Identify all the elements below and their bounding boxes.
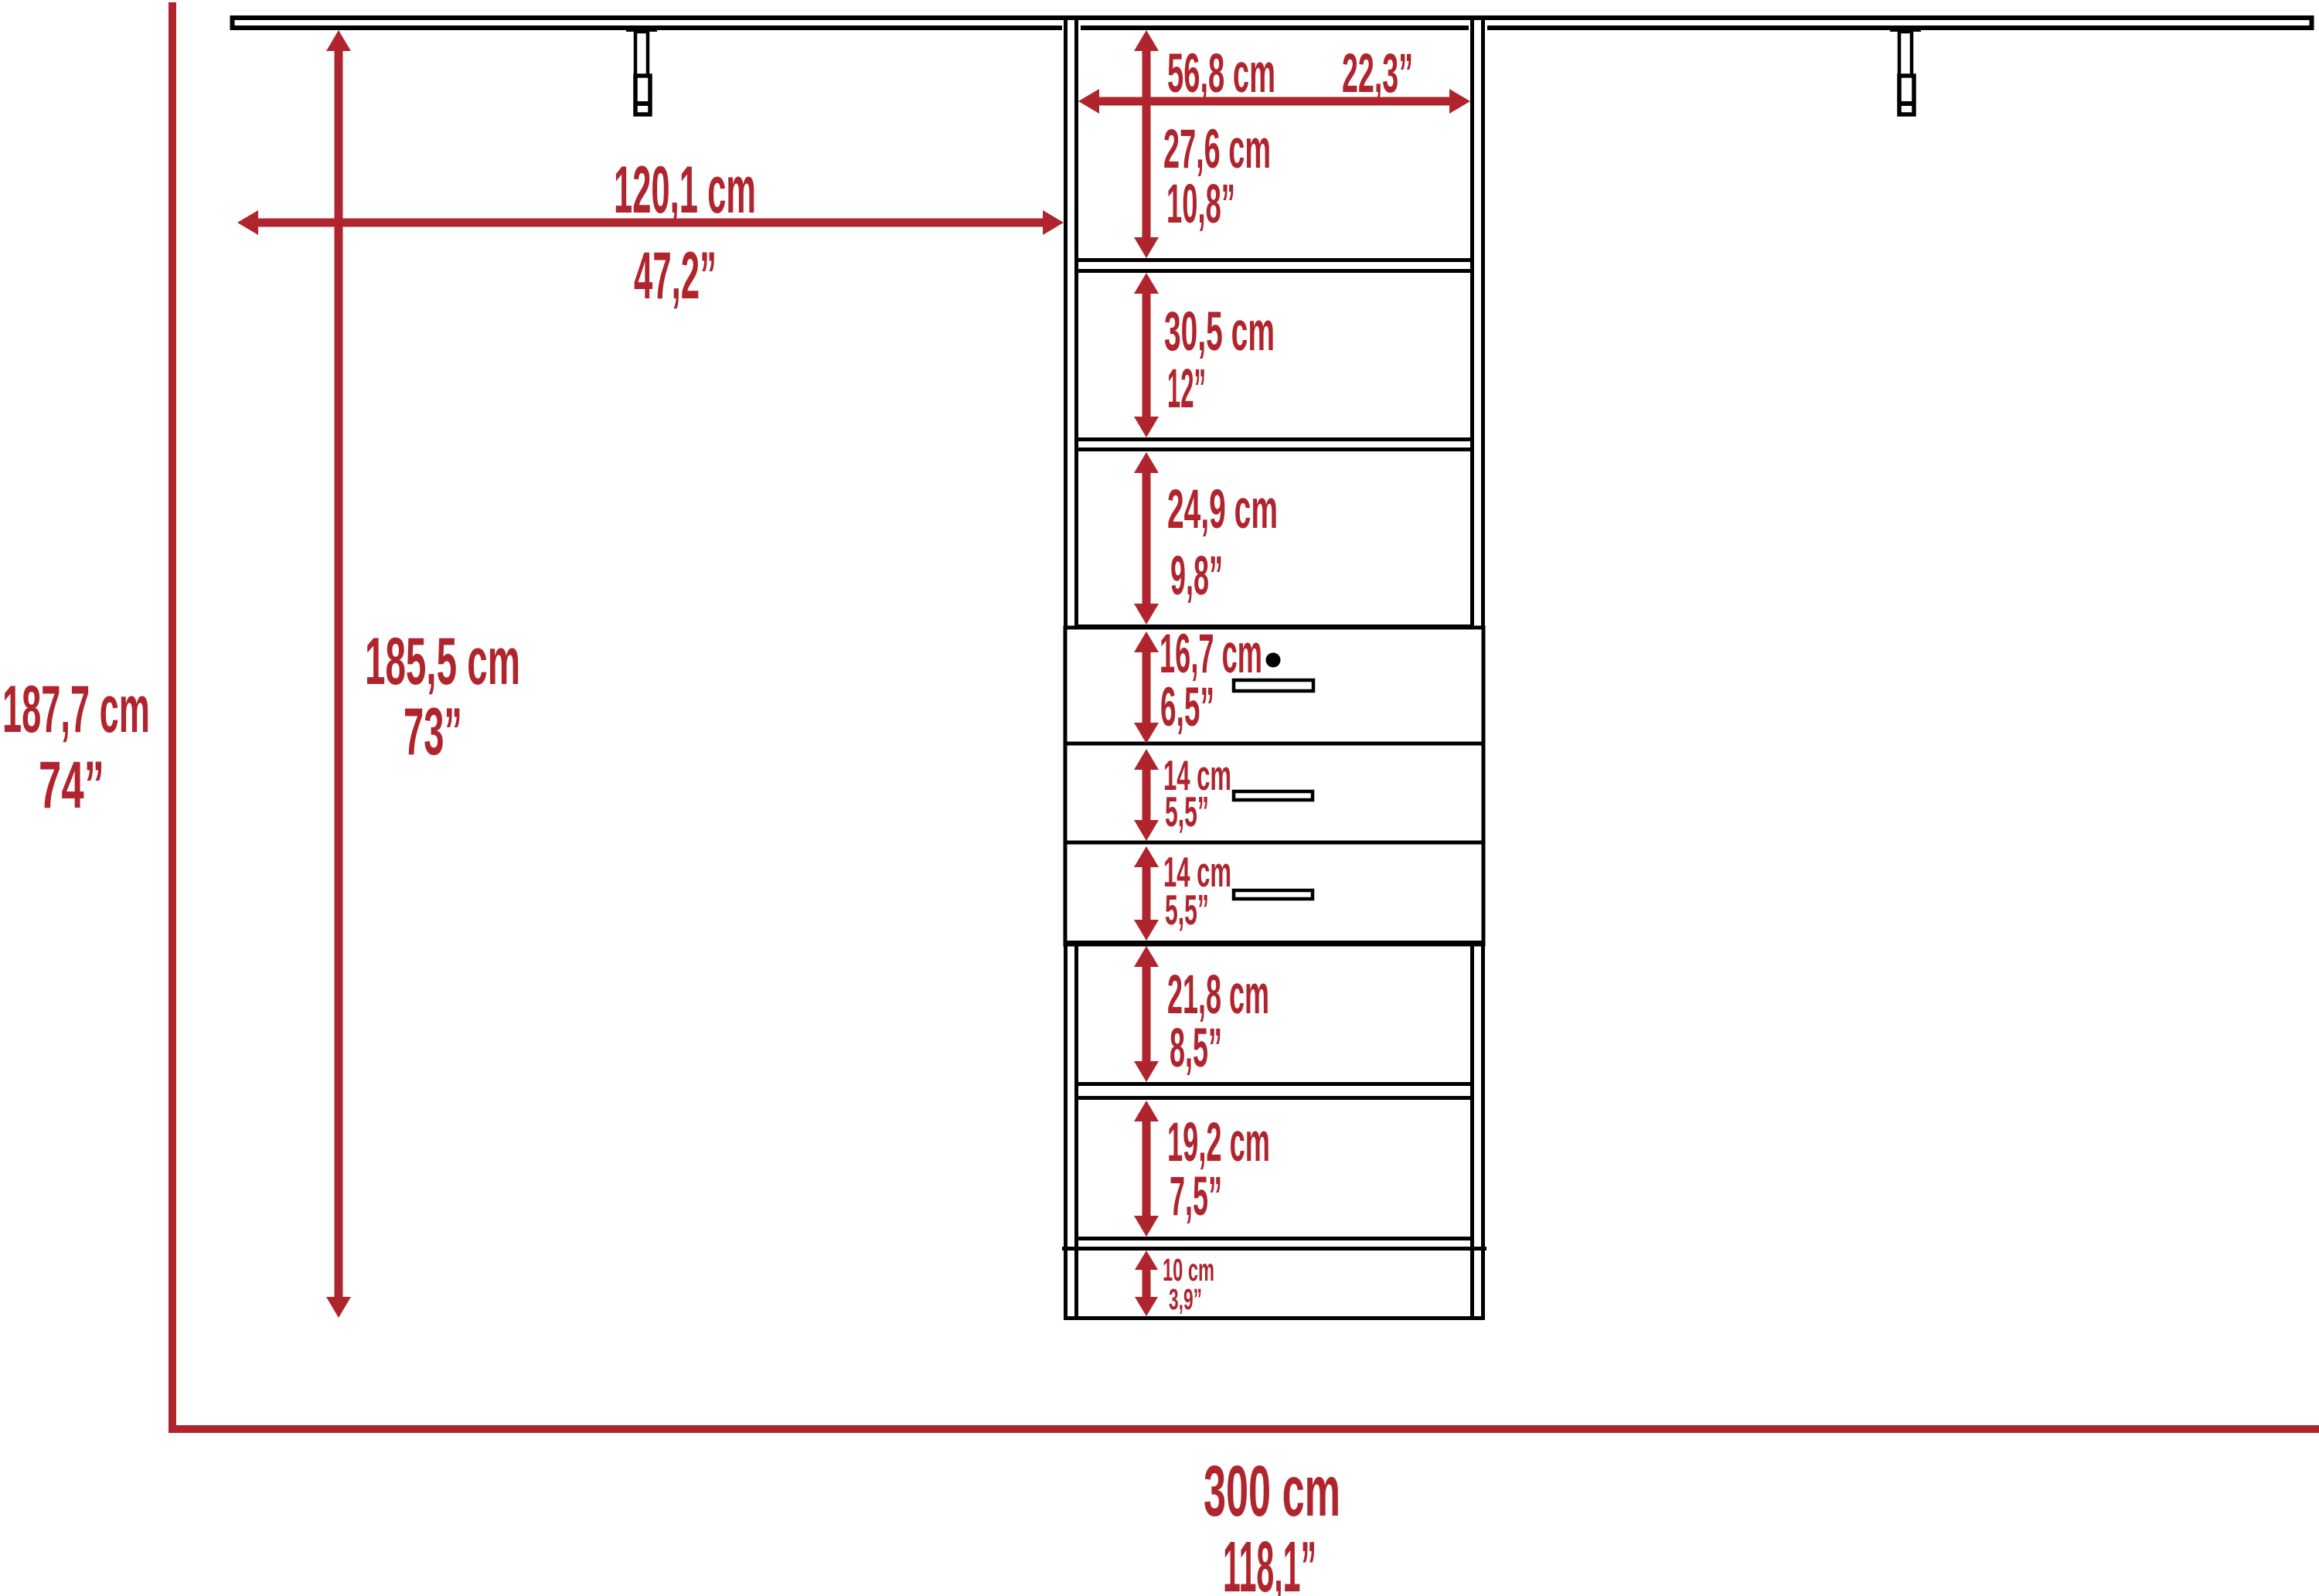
svg-text:10,8”: 10,8”	[1166, 174, 1235, 235]
svg-text:12”: 12”	[1167, 359, 1206, 420]
svg-text:120,1 cm: 120,1 cm	[614, 153, 756, 227]
svg-text:19,2 cm: 19,2 cm	[1167, 1112, 1270, 1173]
svg-text:27,6 cm: 27,6 cm	[1163, 119, 1271, 180]
svg-text:47,2”: 47,2”	[634, 239, 717, 313]
svg-text:30,5 cm: 30,5 cm	[1164, 301, 1275, 362]
svg-text:5,5”: 5,5”	[1165, 886, 1209, 934]
svg-text:24,9 cm: 24,9 cm	[1167, 479, 1278, 540]
svg-text:300 cm: 300 cm	[1204, 1451, 1340, 1531]
svg-text:118,1”: 118,1”	[1223, 1526, 1316, 1596]
svg-text:3,9”: 3,9”	[1169, 1284, 1202, 1316]
svg-text:7,5”: 7,5”	[1170, 1166, 1222, 1227]
svg-text:56,8 cm: 56,8 cm	[1167, 43, 1275, 104]
svg-text:22,3”: 22,3”	[1342, 43, 1413, 104]
svg-text:185,5 cm: 185,5 cm	[365, 624, 520, 699]
svg-text:187,7 cm: 187,7 cm	[2, 672, 150, 747]
svg-text:6,5”: 6,5”	[1160, 677, 1214, 738]
svg-text:21,8 cm: 21,8 cm	[1167, 965, 1269, 1026]
svg-text:10 cm: 10 cm	[1163, 1252, 1214, 1288]
svg-text:74”: 74”	[39, 748, 104, 822]
svg-text:9,8”: 9,8”	[1170, 546, 1223, 607]
svg-text:5,5”: 5,5”	[1165, 788, 1209, 835]
svg-text:8,5”: 8,5”	[1170, 1018, 1222, 1079]
svg-text:16,7 cm: 16,7 cm	[1159, 624, 1262, 685]
svg-text:73”: 73”	[404, 695, 462, 769]
